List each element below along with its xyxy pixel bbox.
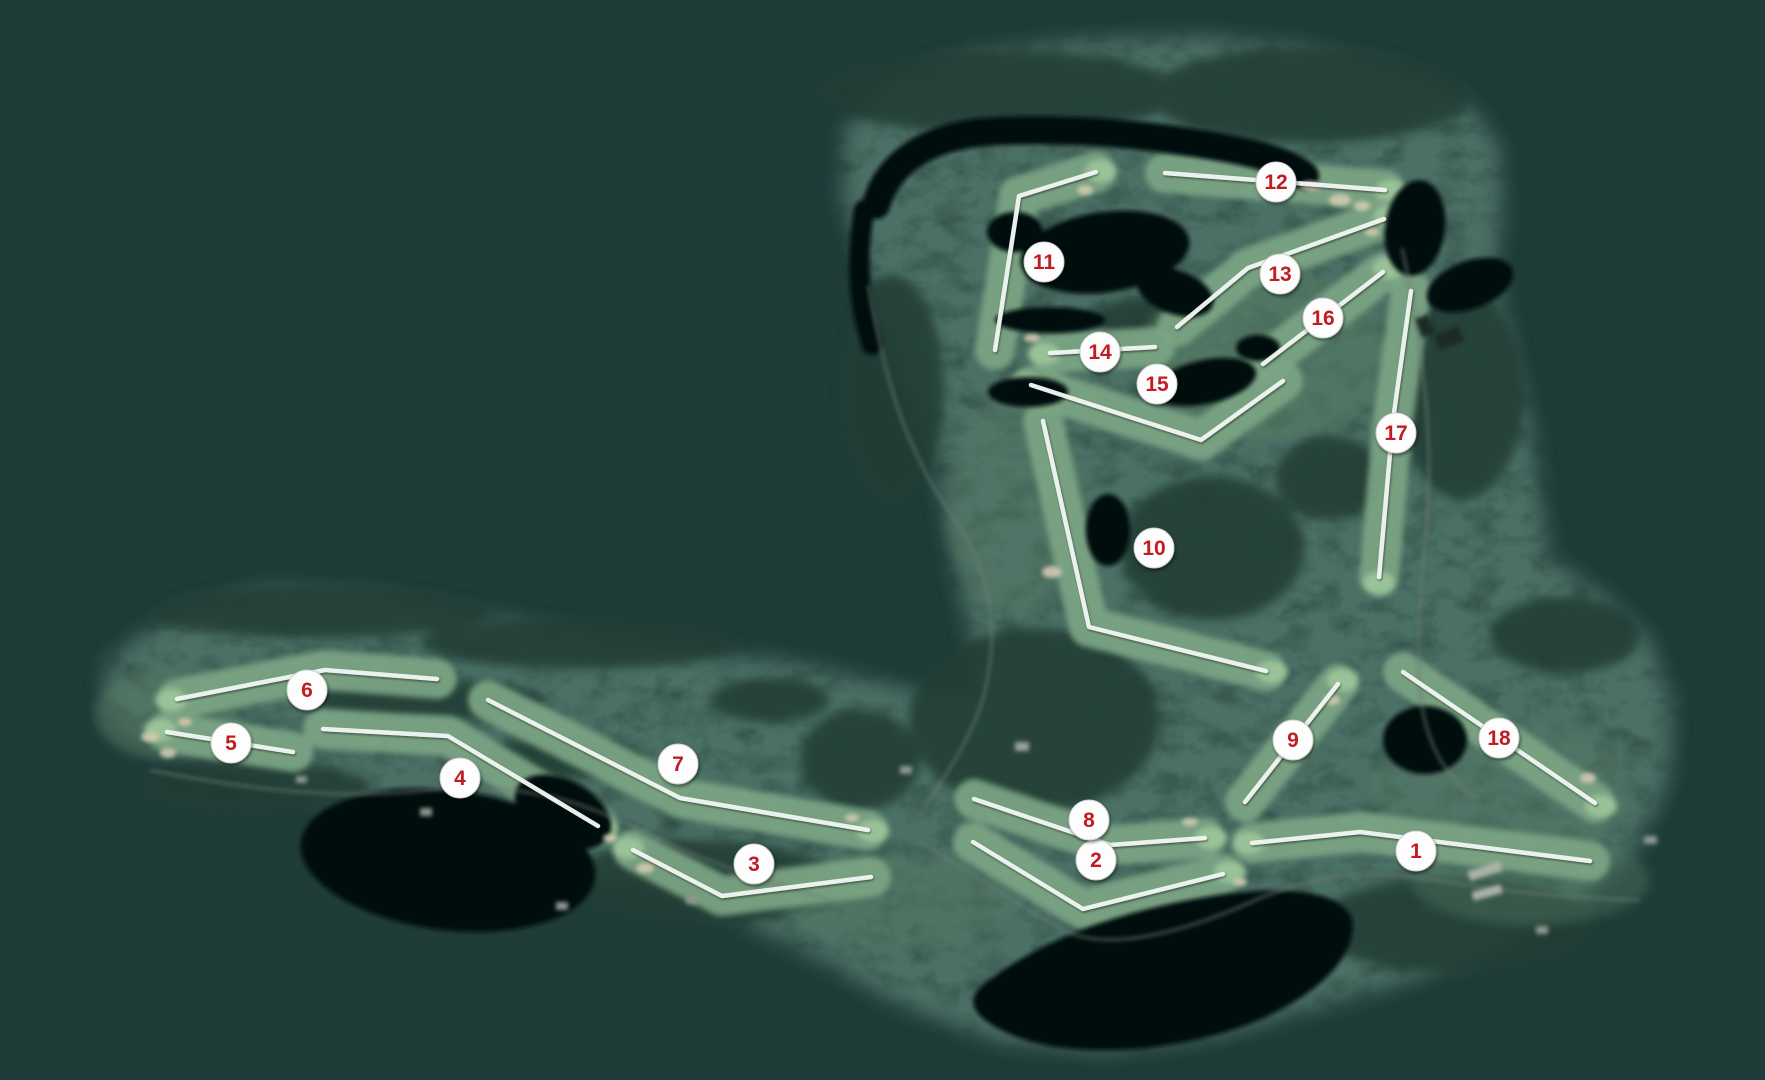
hole-marker-12[interactable]: 12 [1256, 162, 1296, 202]
forest-patch [1490, 597, 1640, 673]
hole-marker-2[interactable]: 2 [1076, 840, 1116, 880]
bunker [1042, 566, 1062, 578]
building [686, 896, 698, 904]
building [296, 776, 307, 783]
bunker [1077, 185, 1093, 195]
hole-marker-number-14: 14 [1088, 341, 1112, 364]
hole-marker-6[interactable]: 6 [287, 670, 327, 710]
hole-marker-number-16: 16 [1311, 307, 1334, 330]
hole-marker-4[interactable]: 4 [440, 758, 480, 798]
hole-marker-10[interactable]: 10 [1134, 528, 1174, 568]
hole-marker-number-10: 10 [1142, 537, 1165, 560]
hole-marker-5[interactable]: 5 [211, 723, 251, 763]
hole-marker-number-13: 13 [1268, 263, 1291, 286]
hole-marker-16[interactable]: 16 [1303, 298, 1343, 338]
forest-patch [800, 710, 920, 810]
hole-marker-number-15: 15 [1145, 373, 1169, 396]
bunker [603, 834, 617, 842]
hole-marker-14[interactable]: 14 [1080, 332, 1120, 372]
hole-green-11 [1085, 160, 1117, 182]
hole-marker-number-11: 11 [1033, 251, 1056, 274]
hole-marker-number-7: 7 [672, 753, 684, 776]
building [1015, 742, 1029, 751]
building [556, 902, 568, 910]
hole-marker-number-1: 1 [1410, 840, 1422, 863]
hole-marker-18[interactable]: 18 [1479, 718, 1519, 758]
building [420, 808, 432, 816]
hole-green-9 [1327, 669, 1359, 691]
hole-marker-3[interactable]: 3 [734, 844, 774, 884]
bunker [845, 814, 859, 822]
water-area [995, 307, 1105, 333]
hole-marker-number-4: 4 [454, 767, 466, 790]
forest-patch [1150, 47, 1470, 143]
bunker [1329, 194, 1351, 206]
hole-marker-11[interactable]: 11 [1024, 242, 1064, 282]
forest-patch [150, 586, 490, 638]
bunker [636, 863, 654, 873]
bunker [1182, 818, 1198, 826]
bunker [1580, 773, 1596, 783]
bunker [1354, 201, 1370, 211]
hole-marker-number-8: 8 [1083, 809, 1095, 832]
building [900, 766, 912, 774]
bunker [1024, 334, 1040, 342]
building [1644, 836, 1657, 844]
bunker [141, 732, 159, 742]
hole-marker-8[interactable]: 8 [1069, 800, 1109, 840]
hole-marker-number-5: 5 [225, 732, 237, 755]
course-map-svg: 123456789101112131415161718 [0, 0, 1765, 1080]
forest-patch [420, 617, 740, 669]
bunker [1233, 878, 1247, 886]
hole-marker-number-18: 18 [1487, 727, 1511, 750]
hole-marker-15[interactable]: 15 [1137, 364, 1177, 404]
golf-course-map: 123456789101112131415161718 [0, 0, 1765, 1080]
hole-marker-number-2: 2 [1090, 849, 1102, 872]
hole-marker-9[interactable]: 9 [1273, 720, 1313, 760]
building [1536, 926, 1548, 934]
hole-marker-number-17: 17 [1384, 422, 1407, 445]
hole-marker-17[interactable]: 17 [1376, 413, 1416, 453]
forest-patch [710, 678, 830, 722]
water-area [1086, 494, 1130, 566]
hole-marker-number-12: 12 [1264, 171, 1287, 194]
hole-marker-number-9: 9 [1287, 729, 1299, 752]
hole-marker-1[interactable]: 1 [1396, 831, 1436, 871]
hole-marker-number-6: 6 [301, 679, 313, 702]
bunker [1365, 228, 1379, 236]
hole-marker-13[interactable]: 13 [1260, 254, 1300, 294]
hole-marker-7[interactable]: 7 [658, 744, 698, 784]
bunker [178, 718, 192, 726]
hole-marker-number-3: 3 [748, 853, 760, 876]
bunker [160, 748, 176, 758]
